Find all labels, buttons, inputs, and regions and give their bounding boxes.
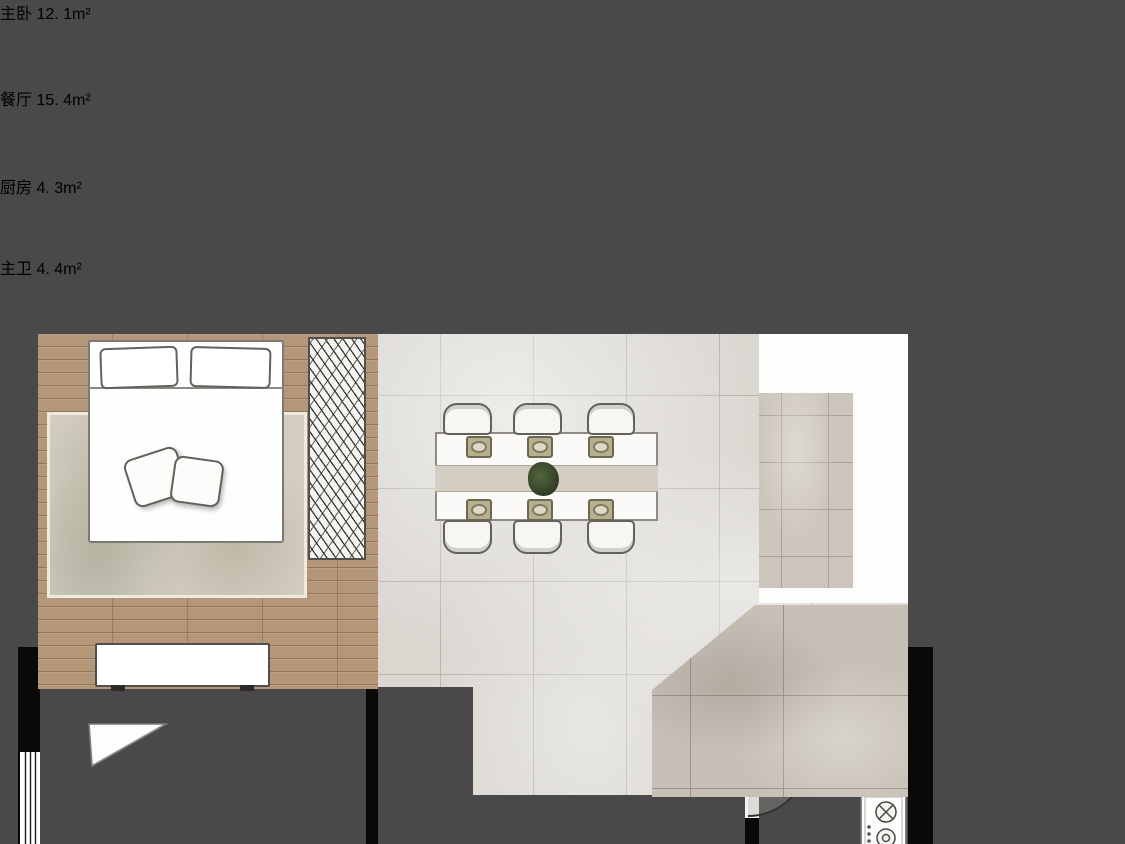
- place-setting: [466, 436, 492, 458]
- dining-chair: [443, 403, 492, 435]
- room-name: 主卧: [0, 6, 32, 23]
- place-setting: [588, 436, 614, 458]
- room-label-dining: 餐厅 15. 4m²: [0, 86, 182, 174]
- room-label-kitchen: 厨房 4. 3m²: [0, 174, 152, 255]
- dining-chair: [513, 520, 562, 554]
- bed-pillow: [99, 346, 178, 390]
- throw-pillow: [169, 455, 225, 509]
- kitchen-tile-mat: [759, 393, 853, 588]
- table-plant: [528, 462, 559, 496]
- dining-chair: [587, 520, 635, 554]
- place-setting: [527, 499, 553, 521]
- wardrobe: [308, 337, 366, 560]
- room-area: 4. 4m²: [36, 261, 81, 278]
- floorplan-screenshot: 主卧 12. 1m² 餐厅 15. 4m² 厨房 4. 3m² 主卫 4. 4m…: [0, 0, 1125, 844]
- dining-chair: [443, 520, 492, 554]
- gas-stove: [861, 793, 906, 844]
- window-bedroom-left: [20, 752, 40, 844]
- duvet-fold: [89, 724, 166, 766]
- place-setting: [527, 436, 553, 458]
- place-setting: [466, 499, 492, 521]
- dining-chair: [587, 403, 635, 435]
- room-name: 主卫: [0, 261, 32, 278]
- place-setting: [588, 499, 614, 521]
- room-area: 4. 3m²: [36, 180, 81, 197]
- dresser-cabinet: [95, 643, 270, 687]
- room-name: 厨房: [0, 180, 32, 197]
- room-area: 12. 1m²: [36, 6, 90, 23]
- room-name: 餐厅: [0, 92, 32, 109]
- room-area: 15. 4m²: [36, 92, 90, 109]
- room-label-bedroom: 主卧 12. 1m²: [0, 0, 178, 86]
- room-label-bathroom: 主卫 4. 4m²: [0, 255, 160, 335]
- bed-pillow: [189, 346, 271, 389]
- dining-chair: [513, 403, 562, 435]
